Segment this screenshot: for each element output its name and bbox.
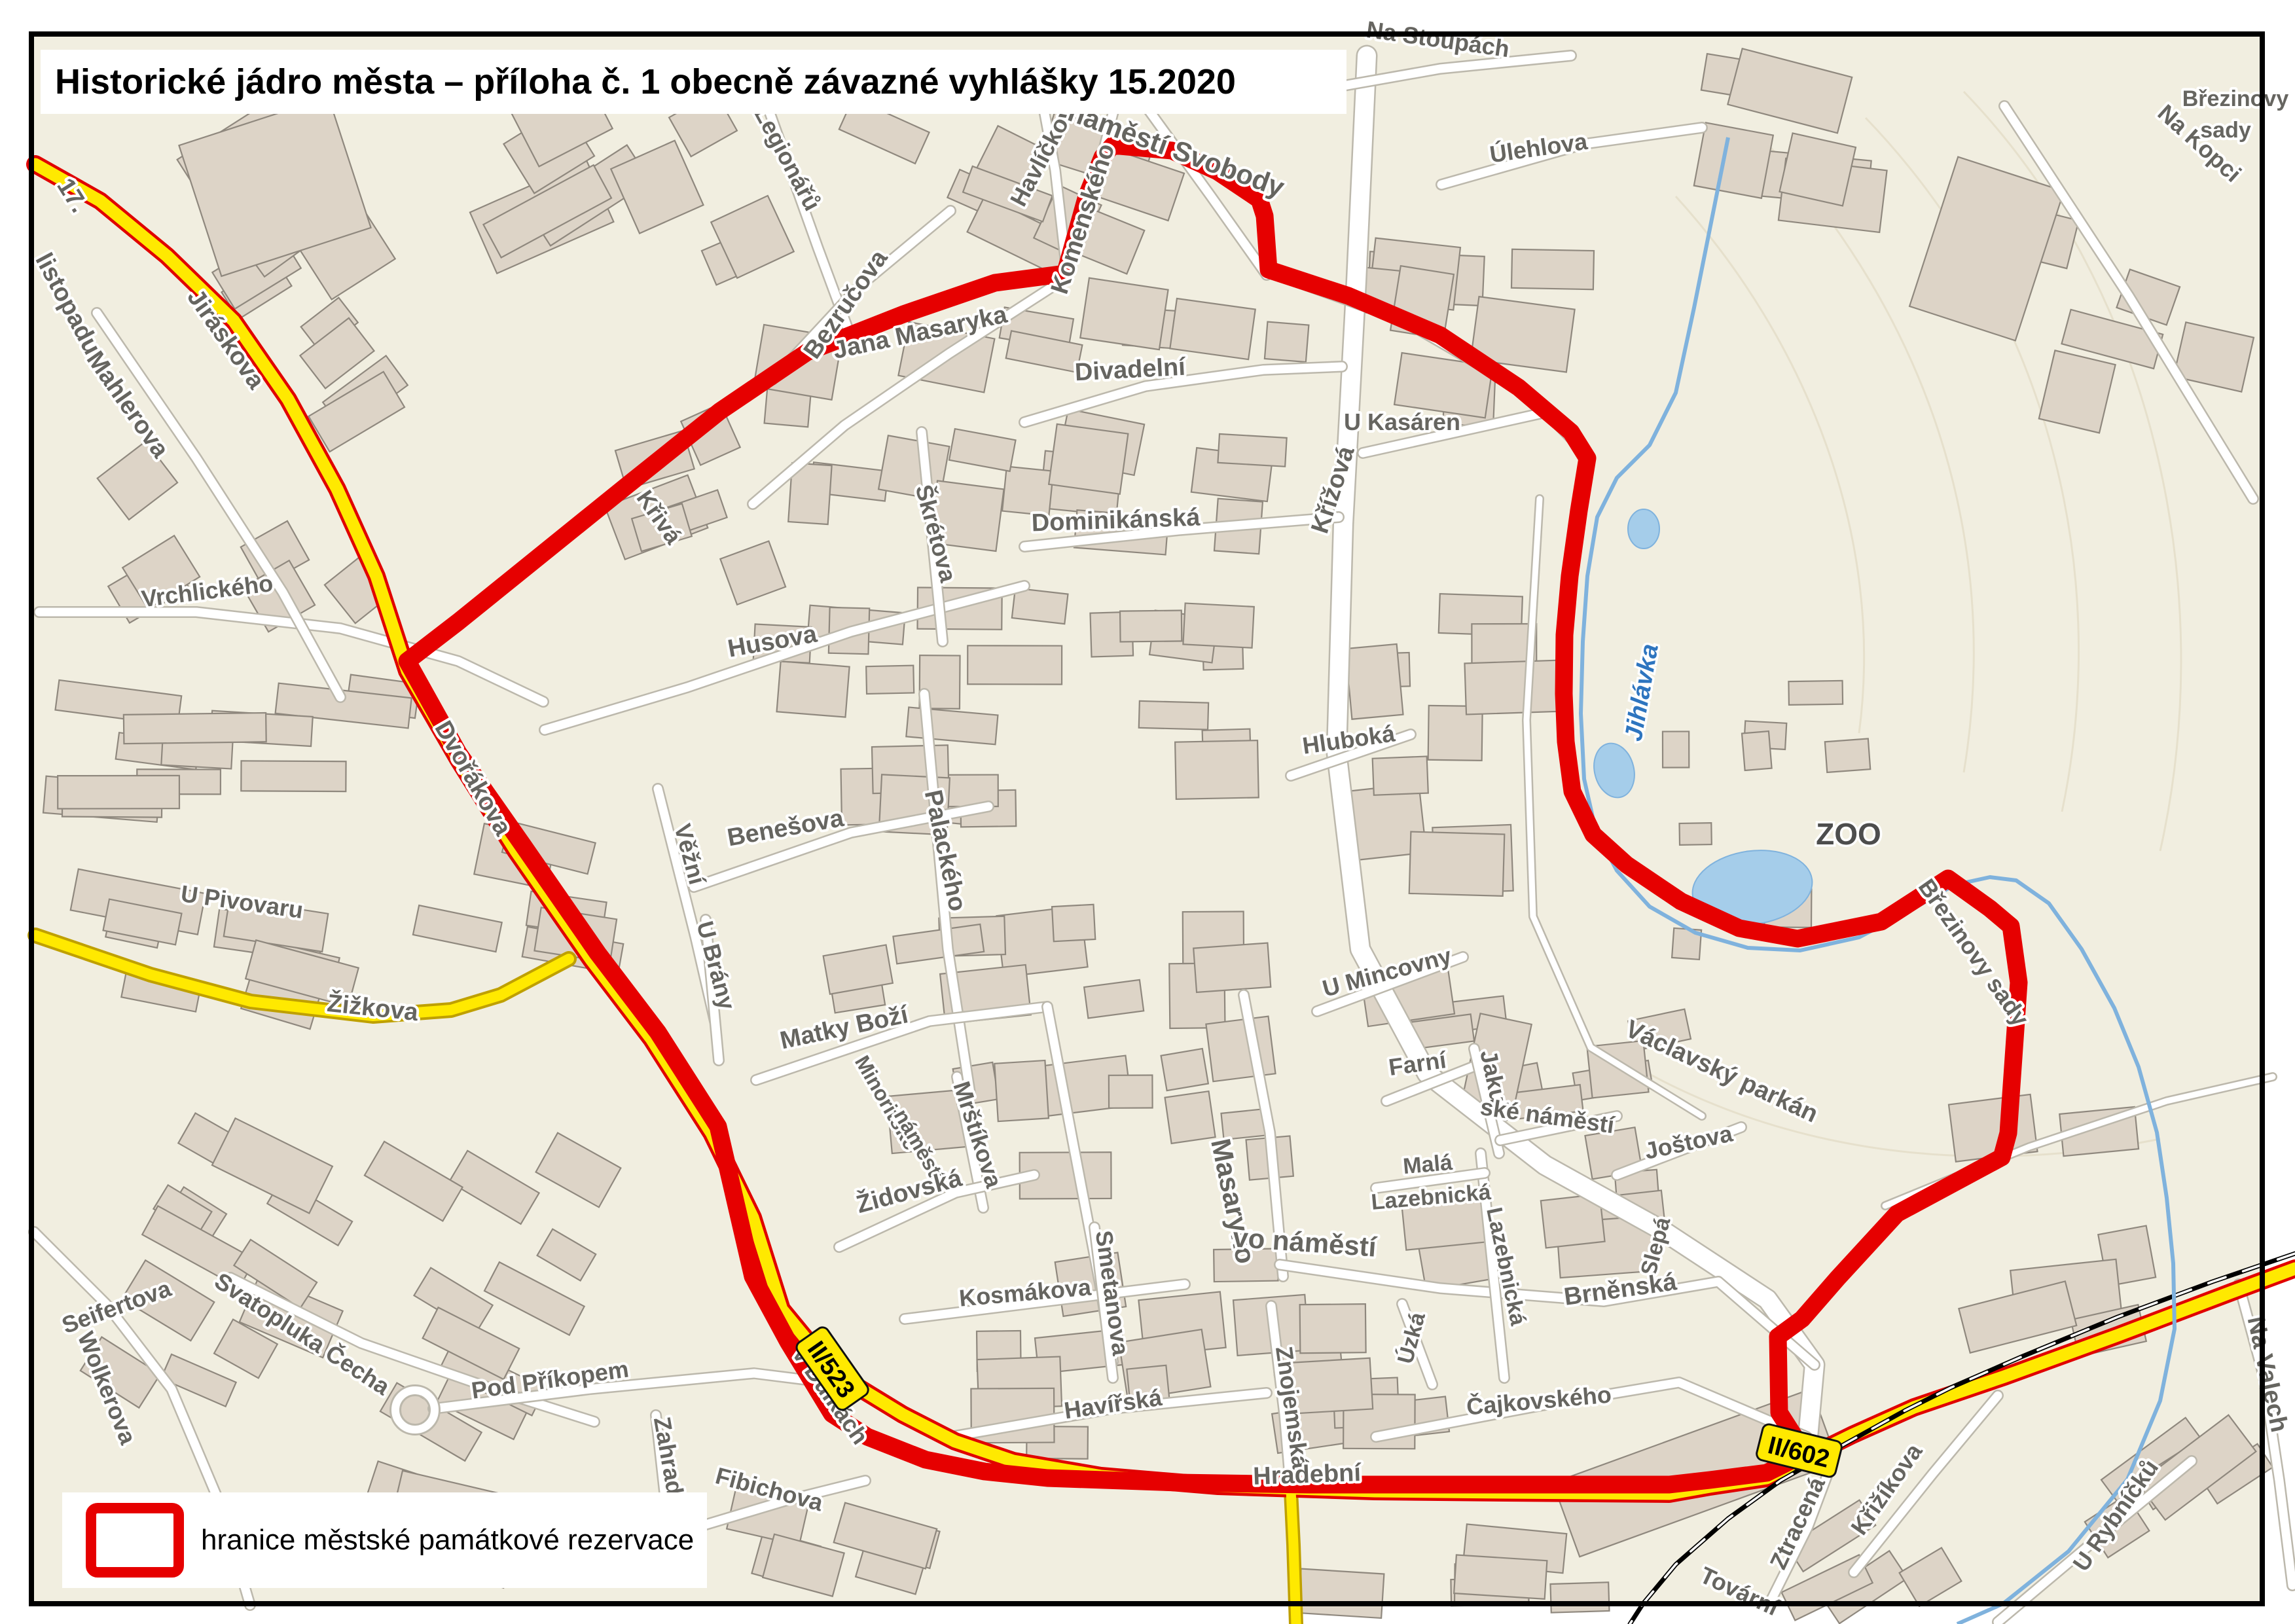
- legend: hranice městské památkové rezervace: [62, 1492, 707, 1588]
- street-label: Hradební: [1253, 1459, 1362, 1490]
- legend-label: hranice městské památkové rezervace: [201, 1524, 694, 1557]
- street-label: sady: [2200, 118, 2251, 143]
- map-title-box: Historické jádro města – příloha č. 1 ob…: [41, 50, 1346, 114]
- street-label: Malá: [1402, 1150, 1454, 1179]
- street-label: Březinovy: [2182, 86, 2289, 111]
- street-label: Divadelní: [1074, 353, 1187, 387]
- street-label: U Kasáren: [1344, 408, 1460, 435]
- map-canvas: 17.listopaduMahlerovaJiráskovaVrchlickéh…: [0, 0, 2295, 1624]
- boundary-legend-swatch: [86, 1503, 184, 1578]
- city-map: 17.listopaduMahlerovaJiráskovaVrchlickéh…: [0, 0, 2295, 1624]
- area-label: ZOO: [1816, 817, 1881, 851]
- page-title: Historické jádro města – příloha č. 1 ob…: [55, 62, 1236, 102]
